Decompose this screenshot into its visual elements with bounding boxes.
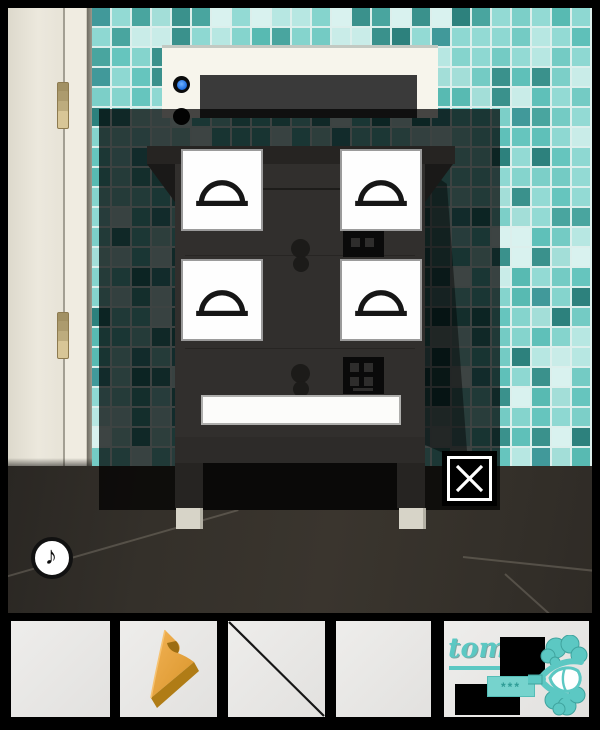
wall-tile [452, 48, 470, 66]
wall-tile [352, 8, 370, 26]
wall-tile [532, 368, 550, 386]
paper-dome-bottom-left[interactable] [181, 259, 263, 341]
wall-tile [492, 48, 510, 66]
wall-tile [332, 28, 350, 46]
door-hinge-bottom [57, 312, 69, 359]
wall-tile [512, 448, 530, 466]
wall-tile [532, 348, 550, 366]
paper-dome-top-left[interactable] [181, 149, 263, 231]
wall-tile [572, 448, 590, 466]
wall-tile [272, 28, 290, 46]
wall-tile [512, 128, 530, 146]
wall-tile [452, 68, 470, 86]
wall-tile [532, 168, 550, 186]
wall-tile [152, 28, 170, 46]
wall-tile [512, 308, 530, 326]
drawer-seam [185, 348, 415, 349]
wall-tile [512, 28, 530, 46]
wall-tile [472, 48, 490, 66]
wall-tile [392, 8, 410, 26]
wall-tile [132, 8, 150, 26]
close-button[interactable] [442, 451, 497, 506]
wall-tile [532, 328, 550, 346]
wall-tile [452, 88, 470, 106]
wall-tile [572, 248, 590, 266]
paper-dome-bottom-right[interactable] [340, 259, 422, 341]
dome-symbol-icon [350, 168, 412, 212]
wall-tile [532, 388, 550, 406]
wall-tile [572, 428, 590, 446]
wall-tile [372, 8, 390, 26]
wall-tile [552, 368, 570, 386]
wall-tile [512, 288, 530, 306]
wall-tile [532, 108, 550, 126]
wall-tile [112, 88, 130, 106]
sound-button[interactable]: ♪ [31, 537, 73, 579]
door-frame-shadow [87, 8, 92, 468]
wall-tile [252, 8, 270, 26]
wall-tile [472, 28, 490, 46]
wall-tile [552, 348, 570, 366]
wall-tile [512, 168, 530, 186]
wall-tile [312, 8, 330, 26]
wall-tile [572, 168, 590, 186]
pip-icon [350, 363, 359, 372]
wall-tile [512, 68, 530, 86]
wall-tile [352, 28, 370, 46]
pip-icon [351, 238, 360, 247]
wall-tile [452, 8, 470, 26]
wall-tile [532, 8, 550, 26]
wall-tile [512, 148, 530, 166]
close-x-icon [450, 459, 489, 498]
wall-tile [432, 8, 450, 26]
wall-tile [112, 8, 130, 26]
wall-tile [572, 8, 590, 26]
pip-dash-icon [353, 388, 373, 391]
wall-tile [112, 48, 130, 66]
pip-icon [364, 377, 373, 386]
wall-tile [552, 88, 570, 106]
wall-tile [552, 248, 570, 266]
wall-tile [112, 28, 130, 46]
wall-tile [152, 8, 170, 26]
wall-tile [552, 108, 570, 126]
wall-tile [512, 328, 530, 346]
wall-tile [532, 208, 550, 226]
wall-tile [512, 408, 530, 426]
wall-tile [532, 248, 550, 266]
wall-tile [532, 428, 550, 446]
wall-tile [512, 388, 530, 406]
wall-tile [512, 368, 530, 386]
wall-tile [552, 228, 570, 246]
wall-tile [212, 8, 230, 26]
wall-tile [312, 28, 330, 46]
wall-tile [532, 288, 550, 306]
door-hinge-top [57, 82, 69, 129]
wall-tile [112, 68, 130, 86]
wall-tile [512, 228, 530, 246]
wall-tile [552, 128, 570, 146]
inventory-slot-1[interactable] [11, 621, 110, 717]
wall-tile [472, 68, 490, 86]
wall-tile [512, 348, 530, 366]
wall-tile [452, 28, 470, 46]
wall-tile [132, 28, 150, 46]
pip-icon [364, 363, 373, 372]
dome-symbol-icon [191, 168, 253, 212]
wall-tile [292, 8, 310, 26]
wall-tile [552, 68, 570, 86]
maker-logo-panel: tom *** [444, 621, 589, 717]
wall-tile [272, 8, 290, 26]
wall-tile [192, 28, 210, 46]
wall-tile [532, 68, 550, 86]
wall-tile [512, 108, 530, 126]
wall-tile [132, 68, 150, 86]
wall-tile [572, 28, 590, 46]
wall-tile [572, 188, 590, 206]
cabinet-foot-left [176, 508, 203, 529]
wall-tile [552, 28, 570, 46]
wall-tile [252, 28, 270, 46]
wall-tile [432, 28, 450, 46]
wall-tile [472, 88, 490, 106]
wall-tile [532, 28, 550, 46]
wall-tile [512, 188, 530, 206]
wall-tile [232, 28, 250, 46]
wall-tile [532, 448, 550, 466]
wall-tile [512, 48, 530, 66]
wall-tile [492, 8, 510, 26]
pip-icon [350, 377, 359, 386]
wall-tile [552, 208, 570, 226]
wall-tile [552, 448, 570, 466]
wall-tile [552, 148, 570, 166]
wall-tile [512, 248, 530, 266]
wall-tile [92, 48, 110, 66]
clover-key-icon [528, 635, 590, 717]
wall-tile [532, 408, 550, 426]
wall-tile [92, 68, 110, 86]
wall-tile [572, 368, 590, 386]
wall-tile [572, 328, 590, 346]
wall-tile [572, 148, 590, 166]
wall-tile [92, 88, 110, 106]
music-note-icon: ♪ [45, 544, 58, 569]
pip-panel-two[interactable] [343, 229, 384, 257]
wall-tile [572, 108, 590, 126]
inventory-slot-3[interactable] [228, 621, 325, 717]
wall-tile [92, 28, 110, 46]
wall-tile [532, 88, 550, 106]
wall-tile [292, 28, 310, 46]
logo-text: tom [448, 633, 507, 664]
thin-rod-item[interactable] [228, 621, 325, 717]
cabinet-leg-left [175, 463, 203, 508]
pip-panel-four[interactable] [343, 357, 384, 394]
white-appliance[interactable] [162, 45, 438, 118]
wall-tile [552, 428, 570, 446]
cabinet-underspace [203, 463, 397, 510]
wall-tile [572, 348, 590, 366]
wall-tile [552, 308, 570, 326]
wall-tile [92, 8, 110, 26]
room-scene: ♪ [8, 8, 592, 613]
wall-tile [552, 288, 570, 306]
wall-tile [552, 388, 570, 406]
wall-tile [572, 48, 590, 66]
blank-white-plate[interactable] [201, 395, 401, 425]
cabinet-leg-right [397, 463, 425, 508]
wall-tile [492, 28, 510, 46]
wall-tile [572, 408, 590, 426]
close-button-frame [447, 456, 492, 501]
wall-tile [532, 308, 550, 326]
drawer-knob[interactable] [293, 256, 309, 272]
dome-symbol-icon [191, 278, 253, 322]
wall-tile [572, 388, 590, 406]
wall-tile [552, 188, 570, 206]
cabinet-foot-right [399, 508, 426, 529]
wall-tile [232, 8, 250, 26]
wall-tile [512, 88, 530, 106]
wall-tile [332, 8, 350, 26]
blue-led-icon [177, 80, 187, 90]
wall-tile [552, 328, 570, 346]
wall-tile [412, 28, 430, 46]
inventory-slot-2[interactable] [120, 621, 217, 717]
wall-tile [192, 8, 210, 26]
yellow-wedge-item[interactable] [120, 621, 217, 717]
door[interactable] [8, 8, 63, 466]
wall-tile [492, 88, 510, 106]
wall-tile [512, 428, 530, 446]
wall-tile [172, 8, 190, 26]
wall-tile [572, 268, 590, 286]
wall-tile [132, 48, 150, 66]
wall-tile [552, 268, 570, 286]
wall-tile [512, 268, 530, 286]
pip-icon [365, 238, 374, 247]
wall-tile [572, 228, 590, 246]
wall-tile [512, 8, 530, 26]
wall-tile [472, 8, 490, 26]
wall-tile [492, 68, 510, 86]
wall-tile [572, 128, 590, 146]
wall-tile [172, 28, 190, 46]
game-window: ♪ tom *** [0, 0, 600, 730]
cabinet-bottom-rail [175, 437, 425, 465]
wall-tile [132, 88, 150, 106]
wall-tile [572, 208, 590, 226]
wall-tile [532, 48, 550, 66]
wall-tile [552, 408, 570, 426]
wall-tile [512, 208, 530, 226]
inventory-slot-4[interactable] [336, 621, 431, 717]
wall-tile [572, 88, 590, 106]
wall-tile [572, 68, 590, 86]
wall-tile [412, 8, 430, 26]
wall-tile [572, 308, 590, 326]
paper-dome-top-right[interactable] [340, 149, 422, 231]
wall-tile [572, 288, 590, 306]
wall-tile [212, 28, 230, 46]
wall-tile [532, 188, 550, 206]
wall-tile [372, 28, 390, 46]
wall-tile [392, 28, 410, 46]
wall-tile [552, 8, 570, 26]
wall-tile [552, 168, 570, 186]
wall-tile [532, 228, 550, 246]
wall-tile [532, 268, 550, 286]
door-frame-jamb [65, 8, 87, 466]
wall-tile [552, 48, 570, 66]
wall-tile [532, 128, 550, 146]
dome-symbol-icon [350, 278, 412, 322]
wall-tile [532, 148, 550, 166]
